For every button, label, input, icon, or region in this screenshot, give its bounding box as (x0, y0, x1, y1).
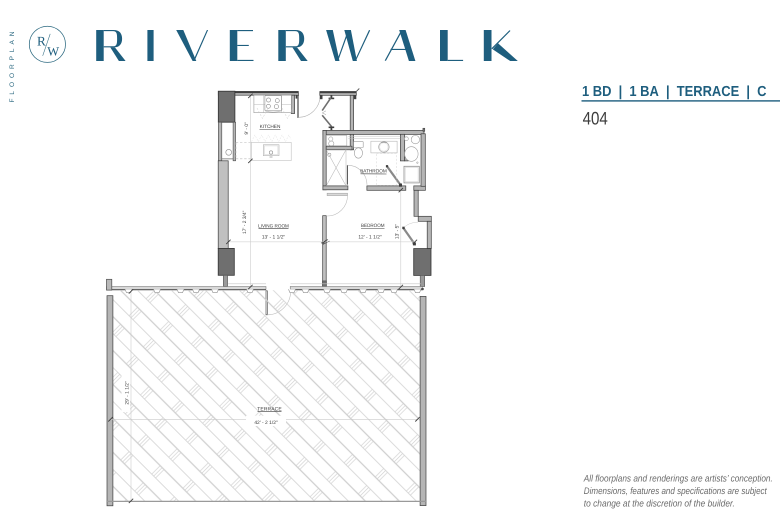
svg-text:Dimensions, features and speci: Dimensions, features and specifications … (584, 486, 767, 497)
svg-text:FLOORPLAN: FLOORPLAN (9, 28, 16, 103)
svg-text:to change at the discretion of: to change at the discretion of the build… (584, 499, 735, 510)
svg-text:17' - 2 3/4": 17' - 2 3/4" (242, 210, 248, 234)
svg-text:13' - 5": 13' - 5" (394, 224, 400, 239)
svg-text:13' - 1 1/2": 13' - 1 1/2" (262, 235, 286, 241)
svg-text:All floorplans and renderings: All floorplans and renderings are artist… (583, 473, 773, 484)
svg-text:404: 404 (583, 109, 608, 129)
svg-text:42' - 2 1/2": 42' - 2 1/2" (254, 420, 278, 426)
svg-text:9' - 0": 9' - 0" (244, 122, 250, 135)
svg-text:W: W (47, 45, 59, 59)
svg-text:12' - 1 1/2": 12' - 1 1/2" (358, 234, 382, 240)
svg-text:R: R (37, 33, 46, 48)
svg-text:29' - 1 1/2": 29' - 1 1/2" (125, 381, 131, 405)
svg-text:1 BD | 1 BA | TERRACE |: 1 BD | 1 BA | TERRACE | C (582, 84, 767, 100)
